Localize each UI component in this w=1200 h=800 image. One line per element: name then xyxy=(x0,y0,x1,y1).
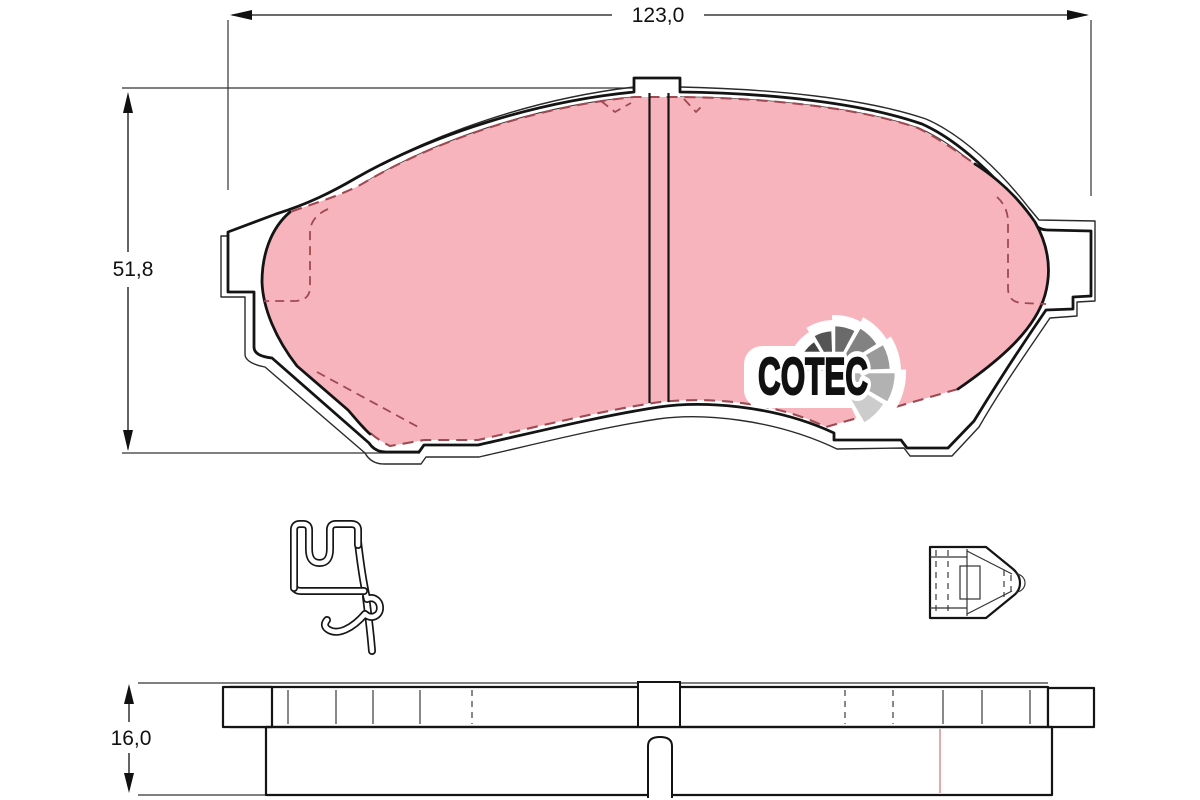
logo-text: COTEC xyxy=(758,348,868,406)
arrow-up-icon-2 xyxy=(124,684,134,704)
drawing-canvas: 123,0 51,8 xyxy=(0,0,1200,800)
side-center-tab xyxy=(638,682,680,727)
arrow-up-icon xyxy=(123,92,133,113)
side-friction-groove xyxy=(648,737,672,798)
friction-material xyxy=(262,97,1048,446)
spring-clip xyxy=(294,524,380,651)
width-dimension-label: 123,0 xyxy=(632,4,685,27)
pad-front-view: COTEC COTEC xyxy=(221,78,1095,464)
side-left-tab xyxy=(223,687,272,727)
pad-side-view xyxy=(138,682,1094,798)
height-dimension-label: 51,8 xyxy=(113,258,154,281)
wear-indicator xyxy=(930,547,1025,618)
brake-pad-technical-drawing: 123,0 51,8 xyxy=(0,0,1200,800)
thickness-dimension-label: 16,0 xyxy=(111,727,152,750)
arrow-right-icon xyxy=(1067,10,1089,20)
thickness-dimension: 16,0 xyxy=(111,684,152,793)
side-right-tab xyxy=(1048,688,1094,727)
arrow-down-icon xyxy=(123,430,133,451)
arrow-left-icon xyxy=(230,10,252,20)
arrow-down-icon-2 xyxy=(124,773,134,793)
wear-indicator-body xyxy=(930,547,1020,618)
